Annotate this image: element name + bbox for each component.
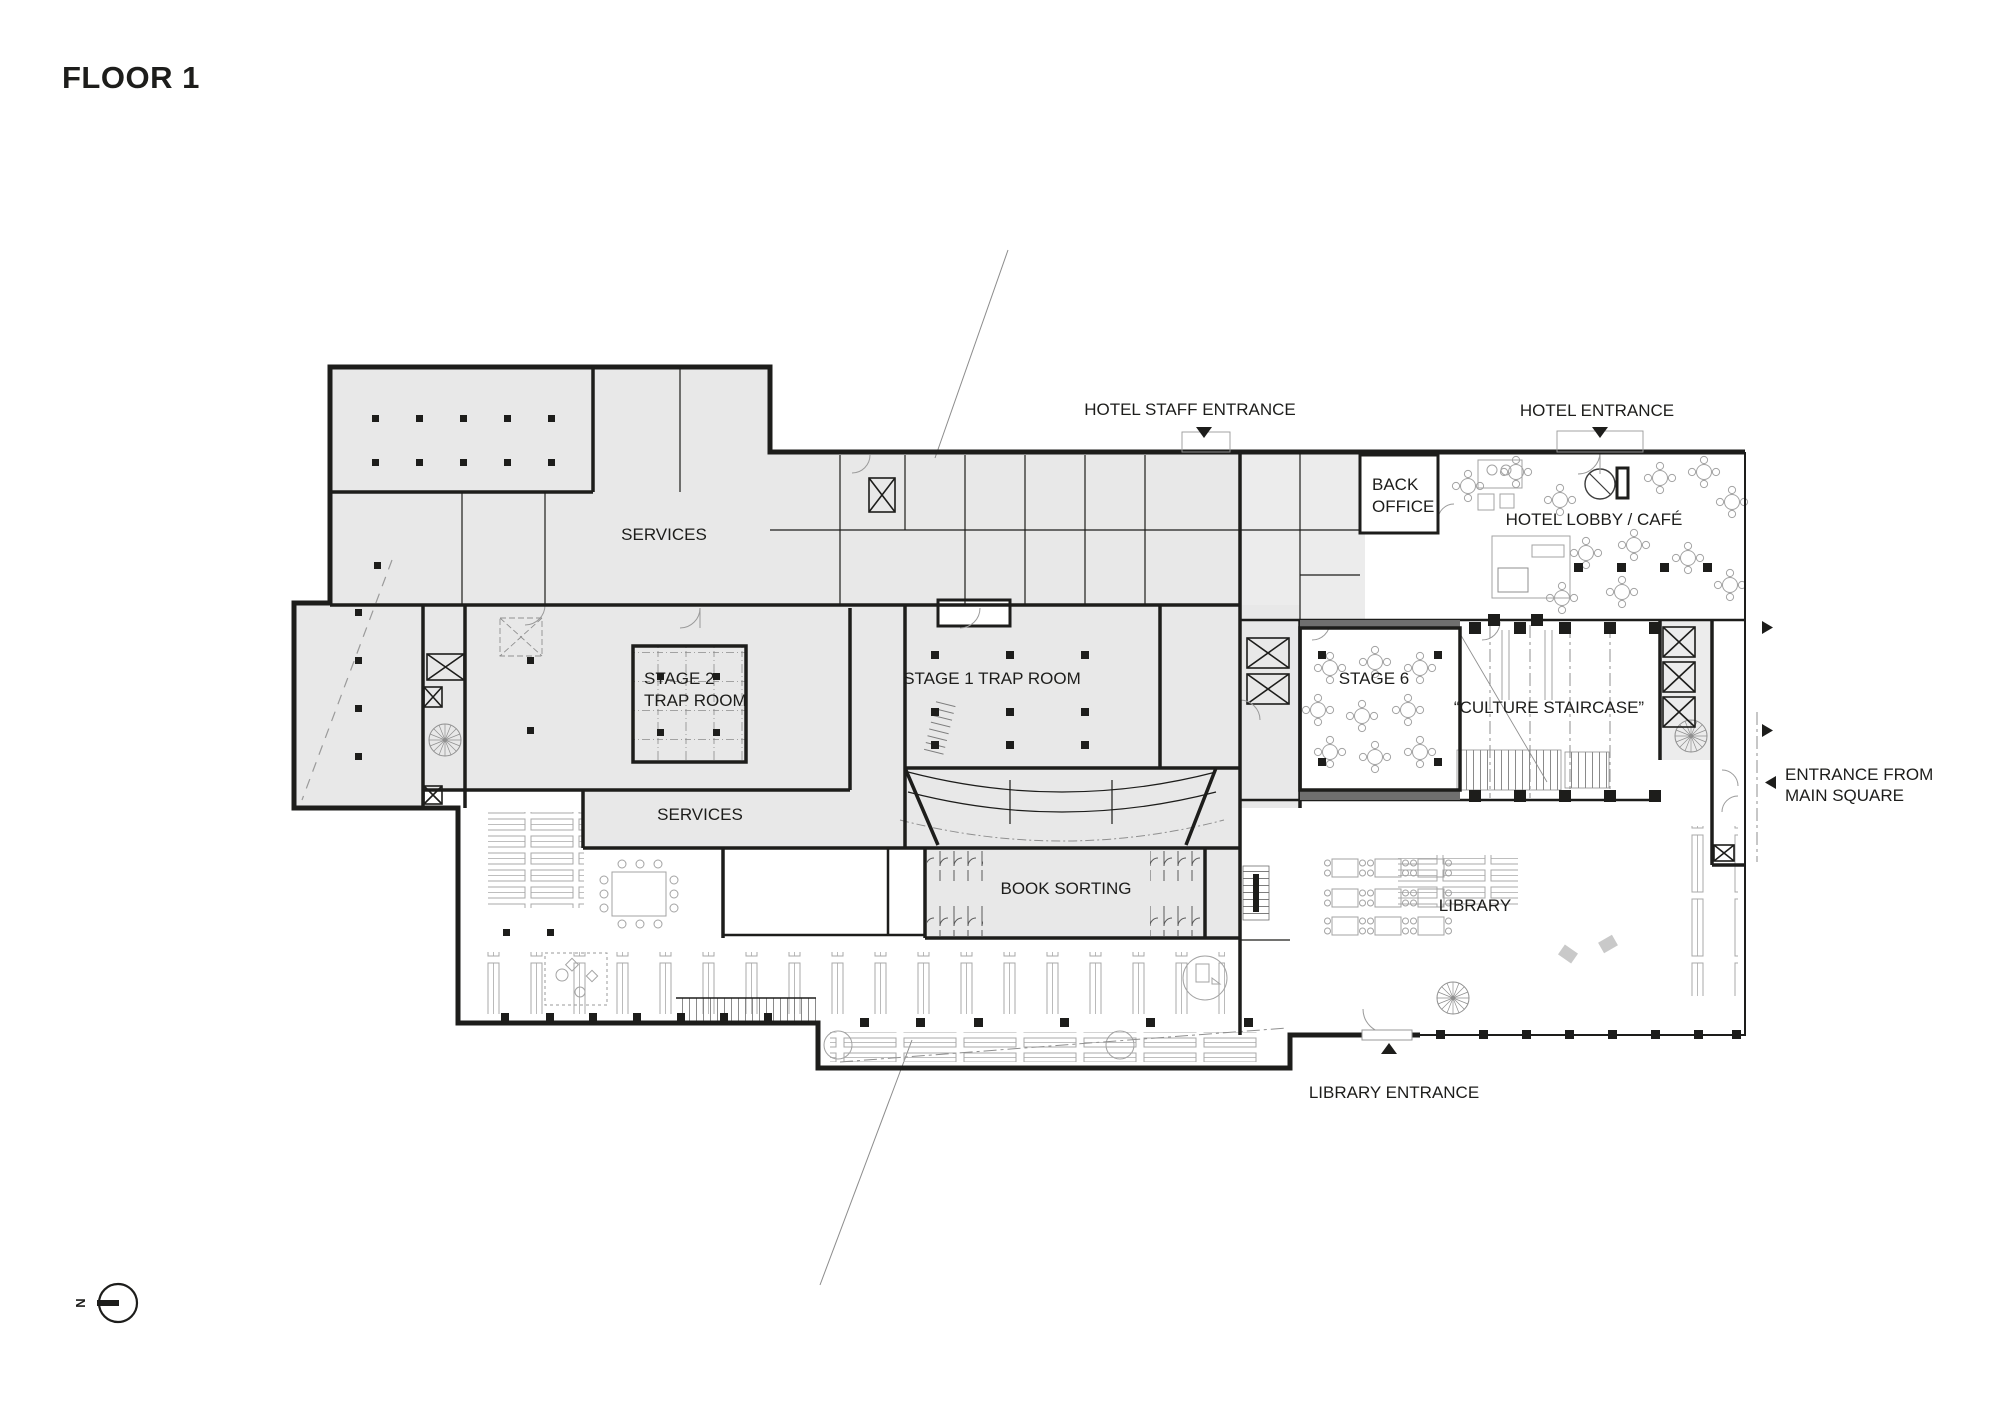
hotel-staff-entrance-label: HOTEL STAFF ENTRANCE: [1084, 400, 1296, 419]
lobby-sofa-group: [1478, 460, 1522, 510]
library-entrance-door: [1362, 1030, 1412, 1040]
spiral-stair-west: [429, 724, 461, 756]
main-square-entrance-arrow-icon: [1765, 776, 1776, 789]
floor-plan-page: FLOOR 1 SERVICES STAGE 2 TRAP ROOM STAGE…: [0, 0, 2000, 1414]
exit-arrow-north-icon: [1762, 621, 1773, 634]
stage2-trap-room-label-line2: TRAP ROOM: [644, 691, 747, 710]
exit-arrow-mid-icon: [1762, 724, 1773, 737]
north-letter: N: [73, 1298, 88, 1307]
hotel-entrance-label: HOTEL ENTRANCE: [1520, 401, 1674, 420]
library-entrance-label: LIBRARY ENTRANCE: [1309, 1083, 1479, 1102]
stair-library-south: [676, 998, 816, 1022]
section-line-top: [935, 250, 1008, 458]
library-shelf-rows: [470, 952, 1225, 1014]
hotel-lobby-label: HOTEL LOBBY / CAFÉ: [1506, 510, 1683, 529]
stage6-label: STAGE 6: [1339, 669, 1410, 688]
page-title: FLOOR 1: [62, 60, 200, 95]
hotel-staff-entrance-arrow-icon: [1196, 427, 1212, 438]
library-west-shelves: [488, 812, 584, 908]
revolving-door-icon: [1585, 468, 1628, 499]
section-line-bottom: [820, 1040, 912, 1285]
north-arrow-icon: N: [73, 1284, 137, 1322]
hotel-entrance-arrow-icon: [1592, 427, 1608, 438]
book-sorting-label: BOOK SORTING: [1001, 879, 1132, 898]
back-office-label-line1: BACK: [1372, 475, 1419, 494]
stair-book-sorting: [1243, 866, 1269, 920]
stage2-trap-room-label-line1: STAGE 2: [644, 669, 715, 688]
culture-staircase-label: “CULTURE STAIRCASE”: [1454, 698, 1645, 717]
services-lower-label: SERVICES: [657, 805, 743, 824]
spiral-stair-east: [1675, 720, 1707, 752]
back-office-label-line2: OFFICE: [1372, 497, 1434, 516]
main-square-entrance-label-line1: ENTRANCE FROM: [1785, 765, 1933, 784]
spiral-display-shelf: [1437, 982, 1469, 1014]
stage1-trap-room-label: STAGE 1 TRAP ROOM: [903, 669, 1081, 688]
lobby-reception-desk: [1492, 536, 1570, 598]
library-label: LIBRARY: [1439, 896, 1511, 915]
main-square-entrance-label-line2: MAIN SQUARE: [1785, 786, 1904, 805]
services-upper-label: SERVICES: [621, 525, 707, 544]
floor-plan-canvas: FLOOR 1 SERVICES STAGE 2 TRAP ROOM STAGE…: [0, 0, 2000, 1414]
library-entrance-arrow-icon: [1381, 1043, 1397, 1054]
